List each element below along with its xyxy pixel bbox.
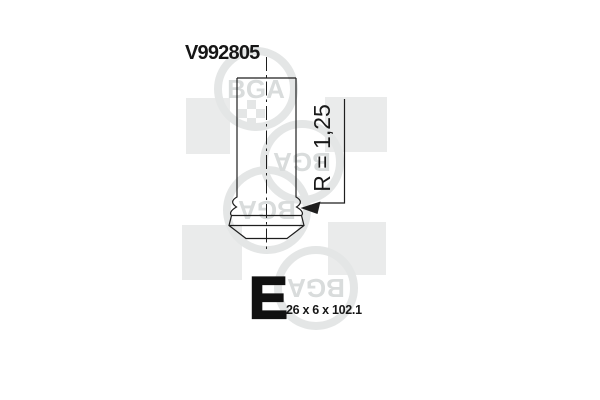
valve-dimensions: 26 x 6 x 102.1 xyxy=(286,303,362,317)
watermark-bga-text-inverted: BGA xyxy=(287,273,345,303)
watermark-checker-square xyxy=(328,222,386,275)
radius-label: R = 1,25 xyxy=(309,104,335,192)
technical-drawing-canvas: BGA BGA BGA BGA V992805 R = 1,25 E 26 x … xyxy=(0,0,600,400)
part-number: V992805 xyxy=(185,42,260,64)
watermark-checker-cell xyxy=(238,109,247,118)
valve-catalog-image: BGA BGA BGA BGA V992805 R = 1,25 E 26 x … xyxy=(0,0,600,400)
valve-type-letter: E xyxy=(249,266,288,331)
watermark-checker-cell xyxy=(256,109,265,118)
